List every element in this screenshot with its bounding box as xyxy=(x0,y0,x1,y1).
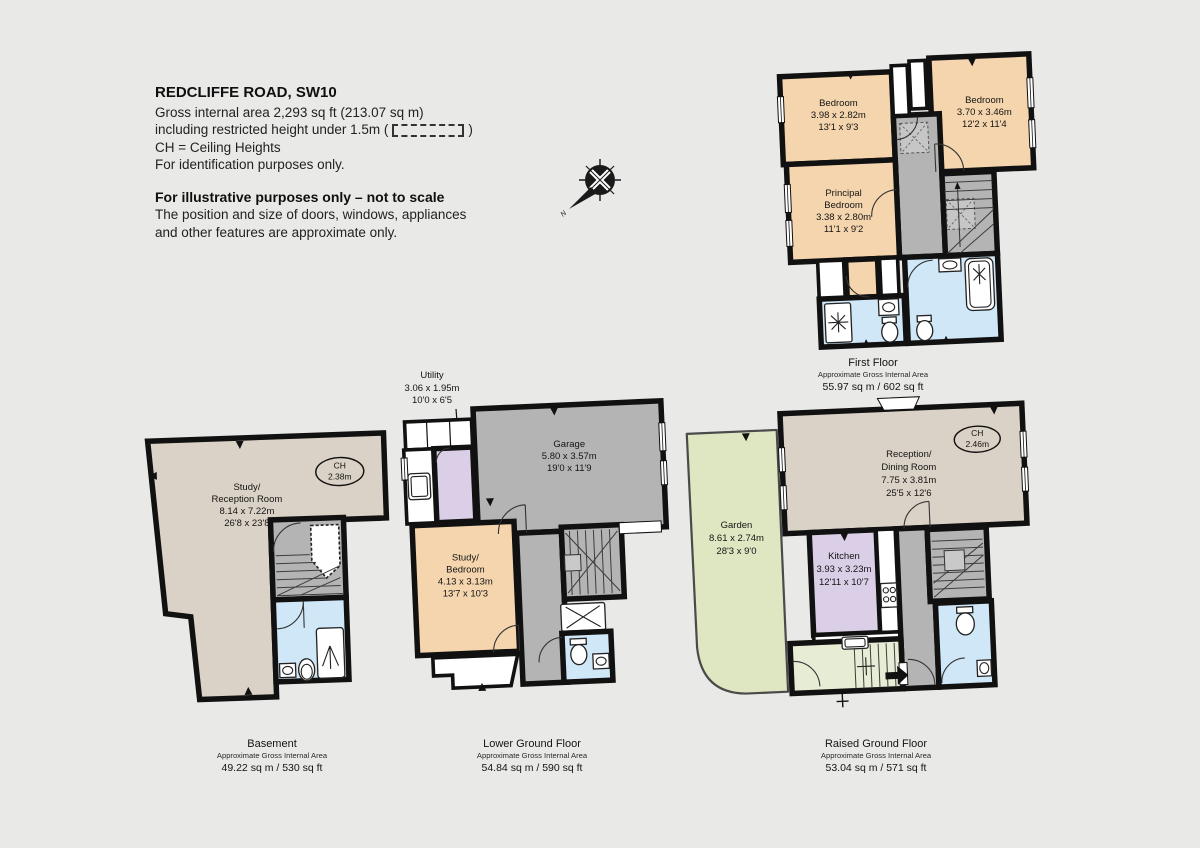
svg-text:Study/: Study/ xyxy=(452,553,479,564)
ch-key-line: CH = Ceiling Heights xyxy=(155,139,595,157)
utility-room xyxy=(434,447,476,523)
basement-geometry: CH 2.38m Study/ Reception Room 8.14 x 7.… xyxy=(148,433,393,701)
svg-text:3.70 x 3.46m: 3.70 x 3.46m xyxy=(957,107,1012,118)
first-floor-geometry: Bedroom 3.98 x 2.82m 13'1 x 9'3 Bedroom … xyxy=(776,54,1044,351)
first-floor-caption: First Floor Approximate Gross Internal A… xyxy=(818,357,929,393)
bay-window xyxy=(877,397,919,411)
gross-area-line: Gross internal area 2,293 sq ft (213.07 … xyxy=(155,104,595,122)
svg-text:Bedroom: Bedroom xyxy=(824,200,863,211)
lower-ground-caption: Lower Ground Floor Approximate Gross Int… xyxy=(477,738,588,774)
svg-text:Approximate Gross Internal Are: Approximate Gross Internal Area xyxy=(821,751,932,760)
notice-title: For illustrative purposes only – not to … xyxy=(155,189,595,207)
svg-text:Approximate Gross Internal Are: Approximate Gross Internal Area xyxy=(217,751,328,760)
dressing-corridor xyxy=(846,259,880,298)
svg-text:Bedroom: Bedroom xyxy=(819,98,858,109)
hob-icon xyxy=(880,583,897,608)
closet xyxy=(909,60,927,109)
compass-icon: N xyxy=(552,146,642,236)
raised-ground-geometry: CH 2.46m Garden 8.61 x 2.74m 28'3 x 9'0 … xyxy=(686,392,1038,713)
raised-ground-plan: CH 2.46m Garden 8.61 x 2.74m 28'3 x 9'0 … xyxy=(678,390,1046,785)
svg-text:19'0 x 11'9: 19'0 x 11'9 xyxy=(547,463,592,474)
garden-area xyxy=(687,430,788,696)
toilet-icon xyxy=(916,315,933,341)
compass-needle xyxy=(569,187,597,209)
sink-icon xyxy=(593,653,610,669)
sink-icon xyxy=(842,636,868,649)
svg-text:13'7 x 10'3: 13'7 x 10'3 xyxy=(443,589,488,600)
svg-text:3.98 x 2.82m: 3.98 x 2.82m xyxy=(811,110,866,121)
svg-text:Raised Ground Floor: Raised Ground Floor xyxy=(825,738,927,750)
svg-text:Bedroom: Bedroom xyxy=(965,95,1004,106)
shower-icon xyxy=(316,627,345,678)
svg-text:3.93 x 3.23m: 3.93 x 3.23m xyxy=(816,564,871,575)
restricted-height-zone xyxy=(946,198,975,229)
closet xyxy=(818,260,846,299)
compass-rose xyxy=(569,159,621,209)
svg-text:12'2 x 11'4: 12'2 x 11'4 xyxy=(962,119,1007,130)
svg-text:10'0 x 6'5: 10'0 x 6'5 xyxy=(412,395,452,406)
svg-text:3.38 x 2.80m: 3.38 x 2.80m xyxy=(816,212,871,223)
lower-ground-geometry: Garage 5.80 x 3.57m 19'0 x 11'9 Study/ B… xyxy=(399,401,676,694)
basement-plan: CH 2.38m Study/ Reception Room 8.14 x 7.… xyxy=(135,415,415,780)
sink-icon xyxy=(279,663,295,678)
svg-text:8.14 x 7.22m: 8.14 x 7.22m xyxy=(219,506,274,517)
svg-text:13'1 x 9'3: 13'1 x 9'3 xyxy=(818,122,858,133)
restricted-height-key-icon xyxy=(392,124,464,137)
svg-text:Study/: Study/ xyxy=(233,482,260,493)
toilet-icon xyxy=(956,607,975,636)
sink-icon xyxy=(878,299,899,316)
svg-text:CH: CH xyxy=(334,461,346,471)
lower-ground-plan: Utility 3.06 x 1.95m 10'0 x 6'5 xyxy=(395,360,695,780)
garage-door xyxy=(619,521,661,534)
svg-text:CH: CH xyxy=(971,428,983,438)
svg-text:5.80 x 3.57m: 5.80 x 3.57m xyxy=(542,451,597,462)
svg-text:Principal: Principal xyxy=(825,188,861,199)
svg-text:28'3 x 9'0: 28'3 x 9'0 xyxy=(716,546,756,557)
svg-text:Kitchen: Kitchen xyxy=(828,551,860,562)
raised-ground-caption: Raised Ground Floor Approximate Gross In… xyxy=(821,738,932,774)
header-block: REDCLIFFE ROAD, SW10 Gross internal area… xyxy=(155,84,595,241)
basement-caption: Basement Approximate Gross Internal Area… xyxy=(217,738,328,774)
svg-text:7.75 x 3.81m: 7.75 x 3.81m xyxy=(881,475,936,486)
notice-line1: The position and size of doors, windows,… xyxy=(155,206,595,224)
svg-text:49.22 sq m / 530 sq ft: 49.22 sq m / 530 sq ft xyxy=(222,762,323,774)
restricted-height-line: including restricted height under 1.5m (… xyxy=(155,121,595,139)
notice-line2: and other features are approximate only. xyxy=(155,224,595,242)
svg-text:Reception Room: Reception Room xyxy=(212,494,283,505)
svg-text:Basement: Basement xyxy=(247,738,297,750)
compass-north-label: N xyxy=(560,209,569,218)
svg-text:Bedroom: Bedroom xyxy=(446,565,485,576)
toilet-icon xyxy=(298,659,315,682)
closet xyxy=(880,258,900,297)
svg-text:4.13 x 3.13m: 4.13 x 3.13m xyxy=(438,577,493,588)
svg-text:Garage: Garage xyxy=(553,439,585,450)
sink-icon xyxy=(939,258,962,272)
svg-text:Utility: Utility xyxy=(420,370,443,381)
svg-text:2.38m: 2.38m xyxy=(328,472,352,482)
toilet-icon xyxy=(570,638,587,665)
lightwell-bay xyxy=(433,654,519,689)
svg-text:Garden: Garden xyxy=(721,520,753,531)
sink-icon xyxy=(977,660,992,677)
svg-text:First Floor: First Floor xyxy=(848,357,898,369)
svg-text:2.46m: 2.46m xyxy=(965,439,989,449)
svg-text:8.61 x 2.74m: 8.61 x 2.74m xyxy=(709,533,764,544)
svg-text:Dining Room: Dining Room xyxy=(881,462,936,473)
svg-text:Approximate Gross Internal Are: Approximate Gross Internal Area xyxy=(818,370,929,379)
notice-block: For illustrative purposes only – not to … xyxy=(155,189,595,242)
svg-text:3.06 x 1.95m: 3.06 x 1.95m xyxy=(405,383,460,394)
svg-text:25'5 x 12'6: 25'5 x 12'6 xyxy=(886,488,931,499)
svg-text:54.84 sq m / 590 sq ft: 54.84 sq m / 590 sq ft xyxy=(482,762,583,774)
svg-text:Lower Ground Floor: Lower Ground Floor xyxy=(483,738,581,750)
bathtub-icon xyxy=(965,258,995,311)
shower-icon xyxy=(824,303,852,343)
first-floor-plan: Bedroom 3.98 x 2.82m 13'1 x 9'3 Bedroom … xyxy=(752,40,1058,395)
svg-text:26'8 x 23'8: 26'8 x 23'8 xyxy=(224,518,269,529)
sink-icon xyxy=(408,473,431,500)
closet xyxy=(891,65,909,116)
svg-text:53.04 sq m / 571 sq ft: 53.04 sq m / 571 sq ft xyxy=(826,762,927,774)
page-title: REDCLIFFE ROAD, SW10 xyxy=(155,84,595,102)
floorplan-page: REDCLIFFE ROAD, SW10 Gross internal area… xyxy=(0,0,1200,848)
svg-text:Reception/: Reception/ xyxy=(886,449,932,460)
svg-text:Approximate Gross Internal Are: Approximate Gross Internal Area xyxy=(477,751,588,760)
identification-line: For identification purposes only. xyxy=(155,156,595,174)
svg-text:12'11 x 10'7: 12'11 x 10'7 xyxy=(819,577,869,588)
svg-text:11'1 x 9'2: 11'1 x 9'2 xyxy=(824,224,863,235)
toilet-icon xyxy=(881,317,898,343)
